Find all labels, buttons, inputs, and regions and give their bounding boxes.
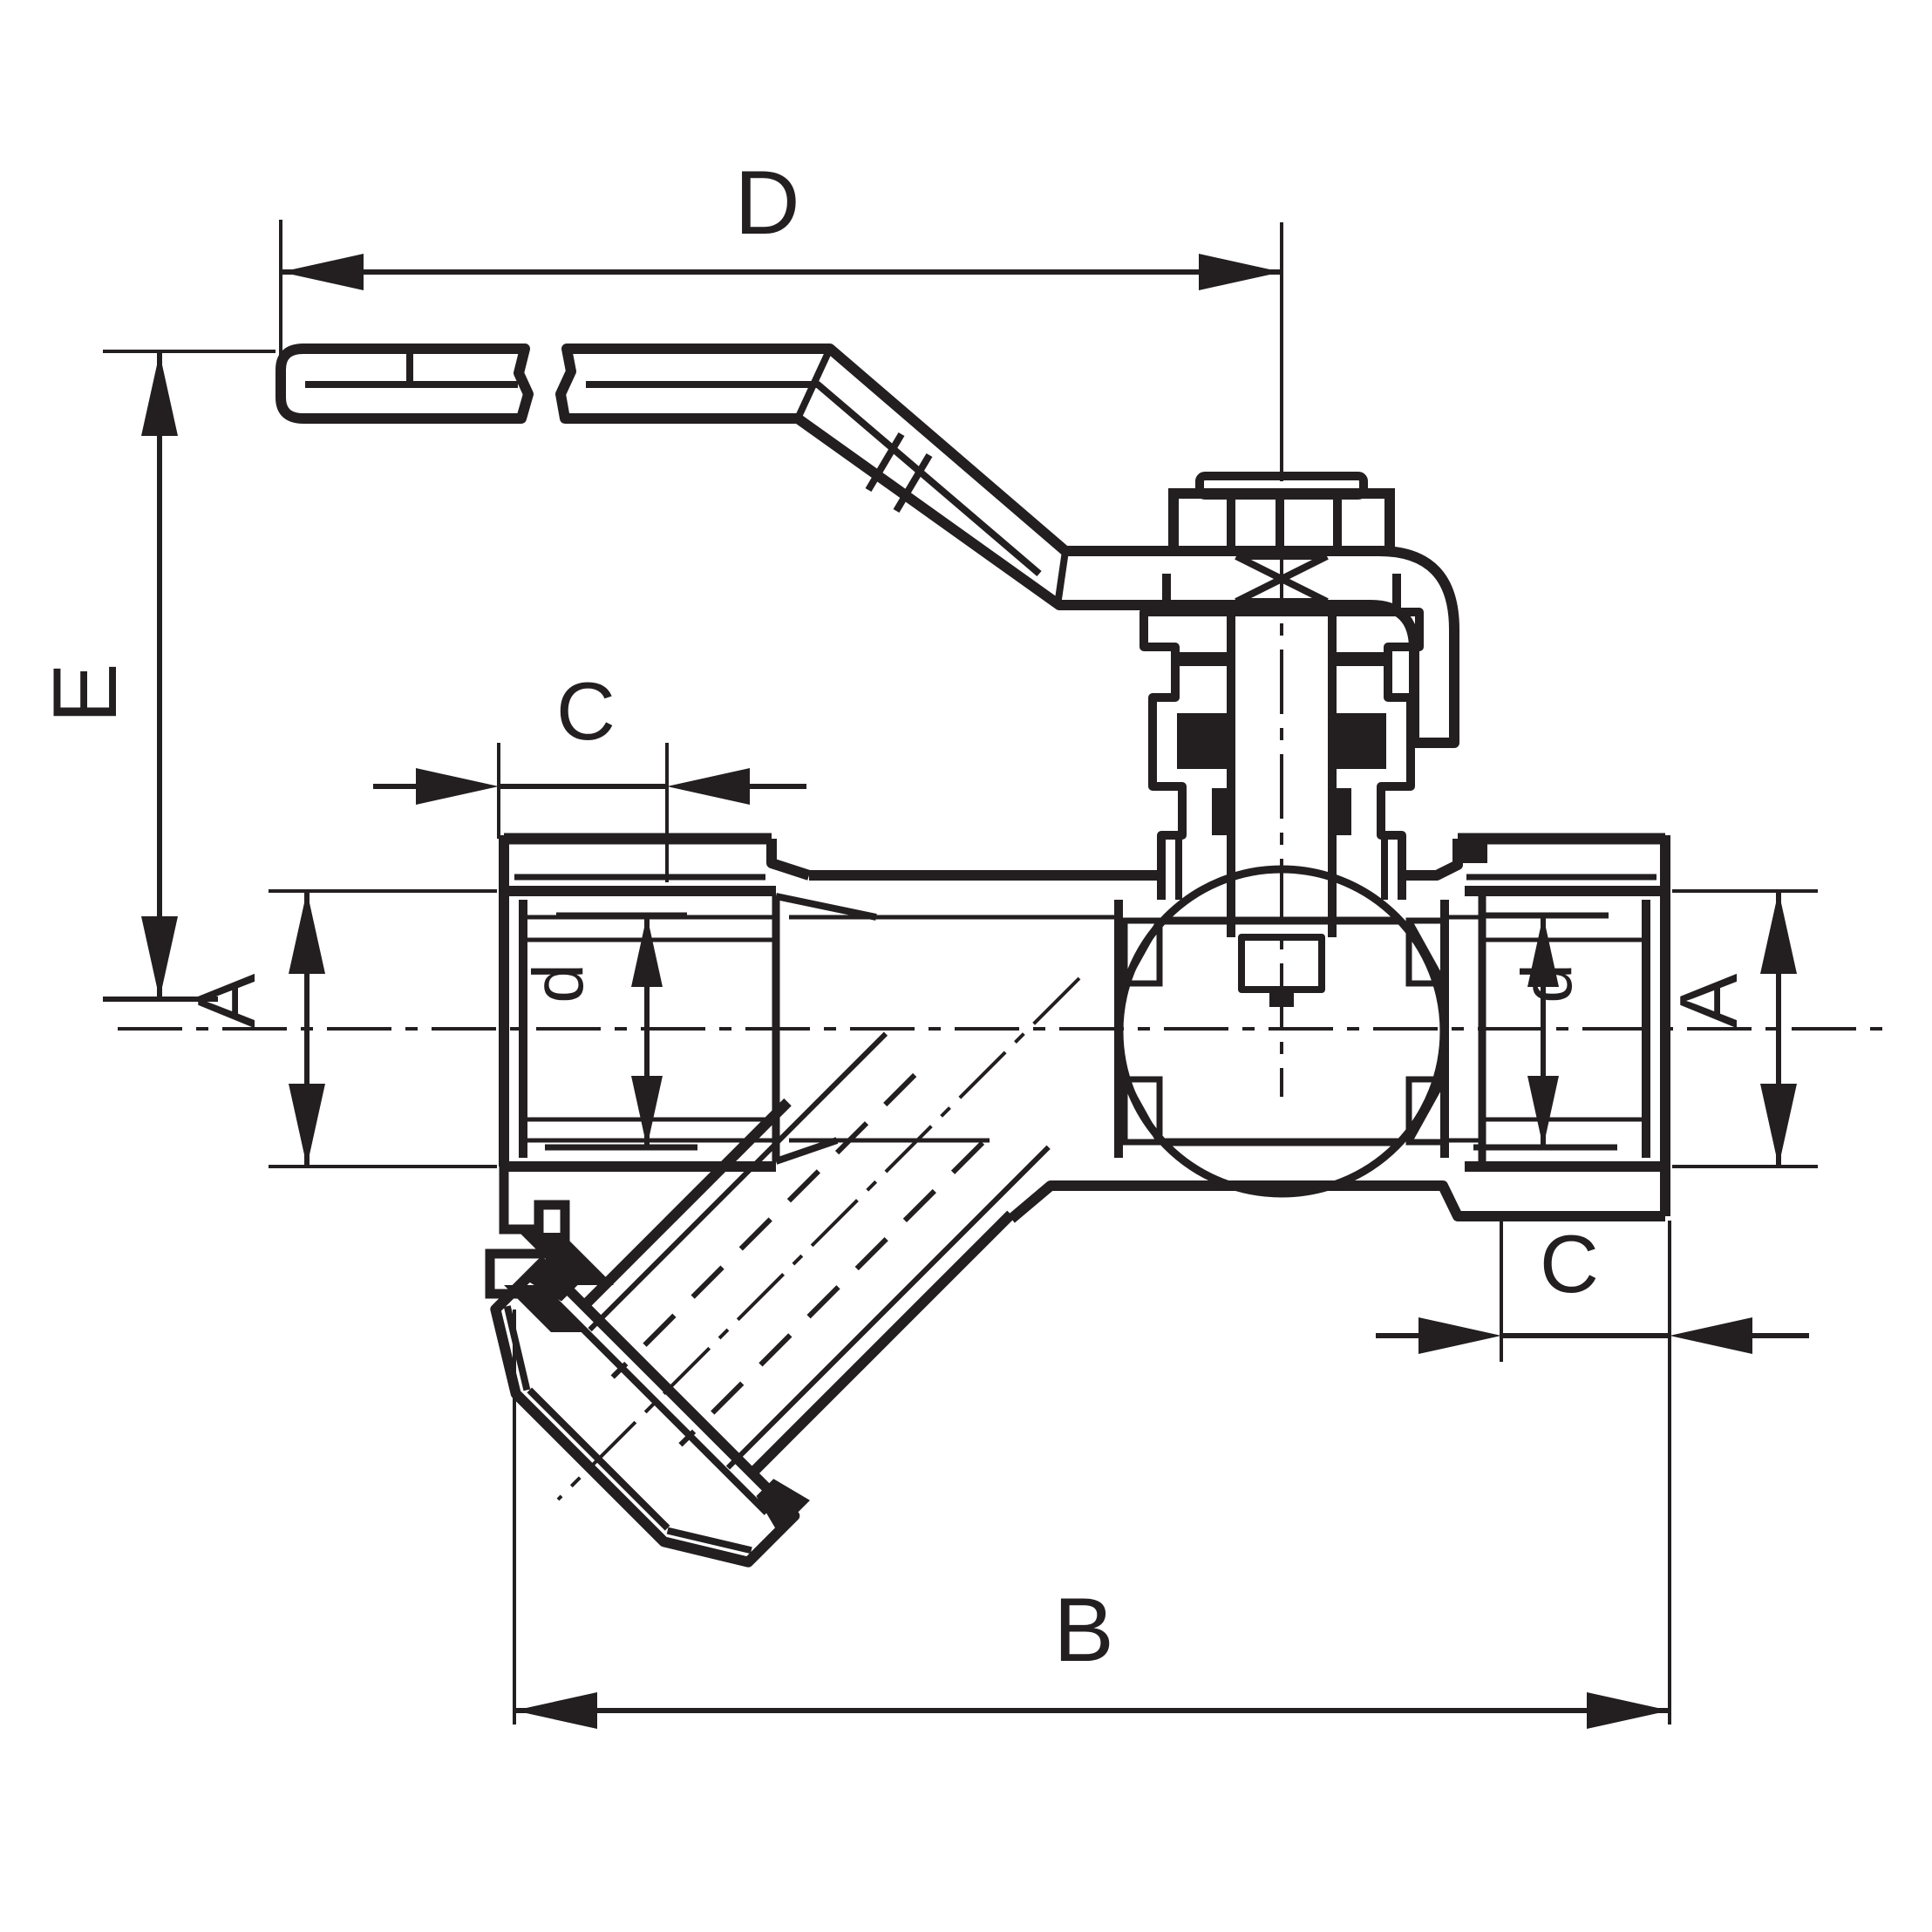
dim-c-left-arrow-1 <box>416 768 499 805</box>
branch-wall-lower-inner <box>728 1147 1049 1468</box>
right-flange-notch <box>1461 842 1487 863</box>
gland-wedge-left <box>1212 788 1231 835</box>
drawing-page: D E C A d <box>0 0 1932 1932</box>
ball-seat-right <box>1409 921 1444 1142</box>
o-ring-right <box>1336 652 1384 666</box>
dimension-d-top: D <box>281 153 1282 357</box>
dimension-d-bore-right: d <box>1473 915 1617 1147</box>
cone-transition-top <box>776 896 876 917</box>
dim-dbore-left-arrow-bottom <box>631 1076 663 1147</box>
dim-c-left-arrow-2 <box>667 768 750 805</box>
dim-a-left-arrow-bottom <box>289 1084 325 1167</box>
dim-a-left-arrow-top <box>289 891 325 974</box>
branch-axis-centerline <box>558 978 1079 1500</box>
dimension-b-bottom: B <box>514 1221 1670 1729</box>
branch-wall-upper-outer <box>584 1102 787 1305</box>
dim-dbore-left-label: d <box>519 963 598 1003</box>
dim-a-left-label: A <box>180 973 272 1028</box>
valve-section-drawing: D E C A d <box>0 0 1932 1932</box>
dim-d-arrow-right <box>1199 254 1282 290</box>
dim-a-right-label: A <box>1663 973 1754 1028</box>
dim-a-right-arrow-bottom <box>1760 1084 1797 1167</box>
dim-b-arrow-right <box>1587 1692 1670 1729</box>
handle-flat-edge <box>1058 551 1065 605</box>
right-flange-step <box>1402 839 1458 875</box>
dim-b-arrow-left <box>514 1692 597 1729</box>
branch-wall-lower-outer <box>752 1214 1011 1473</box>
dim-e-arrow-bottom <box>141 916 178 999</box>
dim-d-label: D <box>734 153 799 254</box>
dim-e-label: E <box>35 663 136 723</box>
left-flange-step <box>772 839 809 875</box>
dim-c-left-label: C <box>556 665 616 757</box>
packing-seal-right <box>1334 713 1386 769</box>
dim-d-arrow-left <box>281 254 364 290</box>
dim-c-right-label: C <box>1540 1218 1599 1310</box>
dim-c-right-arrow-2 <box>1670 1317 1752 1354</box>
dim-b-label: B <box>1053 1580 1113 1681</box>
gland-wedge-right <box>1332 788 1351 835</box>
dim-e-arrow-top <box>141 353 178 436</box>
body-bottom <box>1011 1186 1665 1219</box>
ball-and-seats <box>1119 869 1444 1194</box>
stem-pin <box>1269 990 1294 1007</box>
packing-seal-left <box>1177 713 1229 769</box>
cone-transition-bottom <box>776 1140 837 1161</box>
dim-dbore-right-arrow-bottom <box>1527 1076 1559 1147</box>
ball-seat-left <box>1125 921 1160 1142</box>
dim-a-right-arrow-top <box>1760 891 1797 974</box>
dim-dbore-left-arrow-top <box>631 915 663 987</box>
dimension-c-left: C <box>373 665 806 882</box>
stem-nut-assembly <box>1173 476 1390 602</box>
o-ring-left <box>1179 652 1228 666</box>
dimension-d-bore-left: d <box>519 915 697 1147</box>
dim-c-right-arrow-1 <box>1418 1317 1501 1354</box>
dim-dbore-right-label: d <box>1507 963 1587 1003</box>
dimension-e-left: E <box>35 351 276 999</box>
dimension-c-right: C <box>1376 1218 1809 1362</box>
